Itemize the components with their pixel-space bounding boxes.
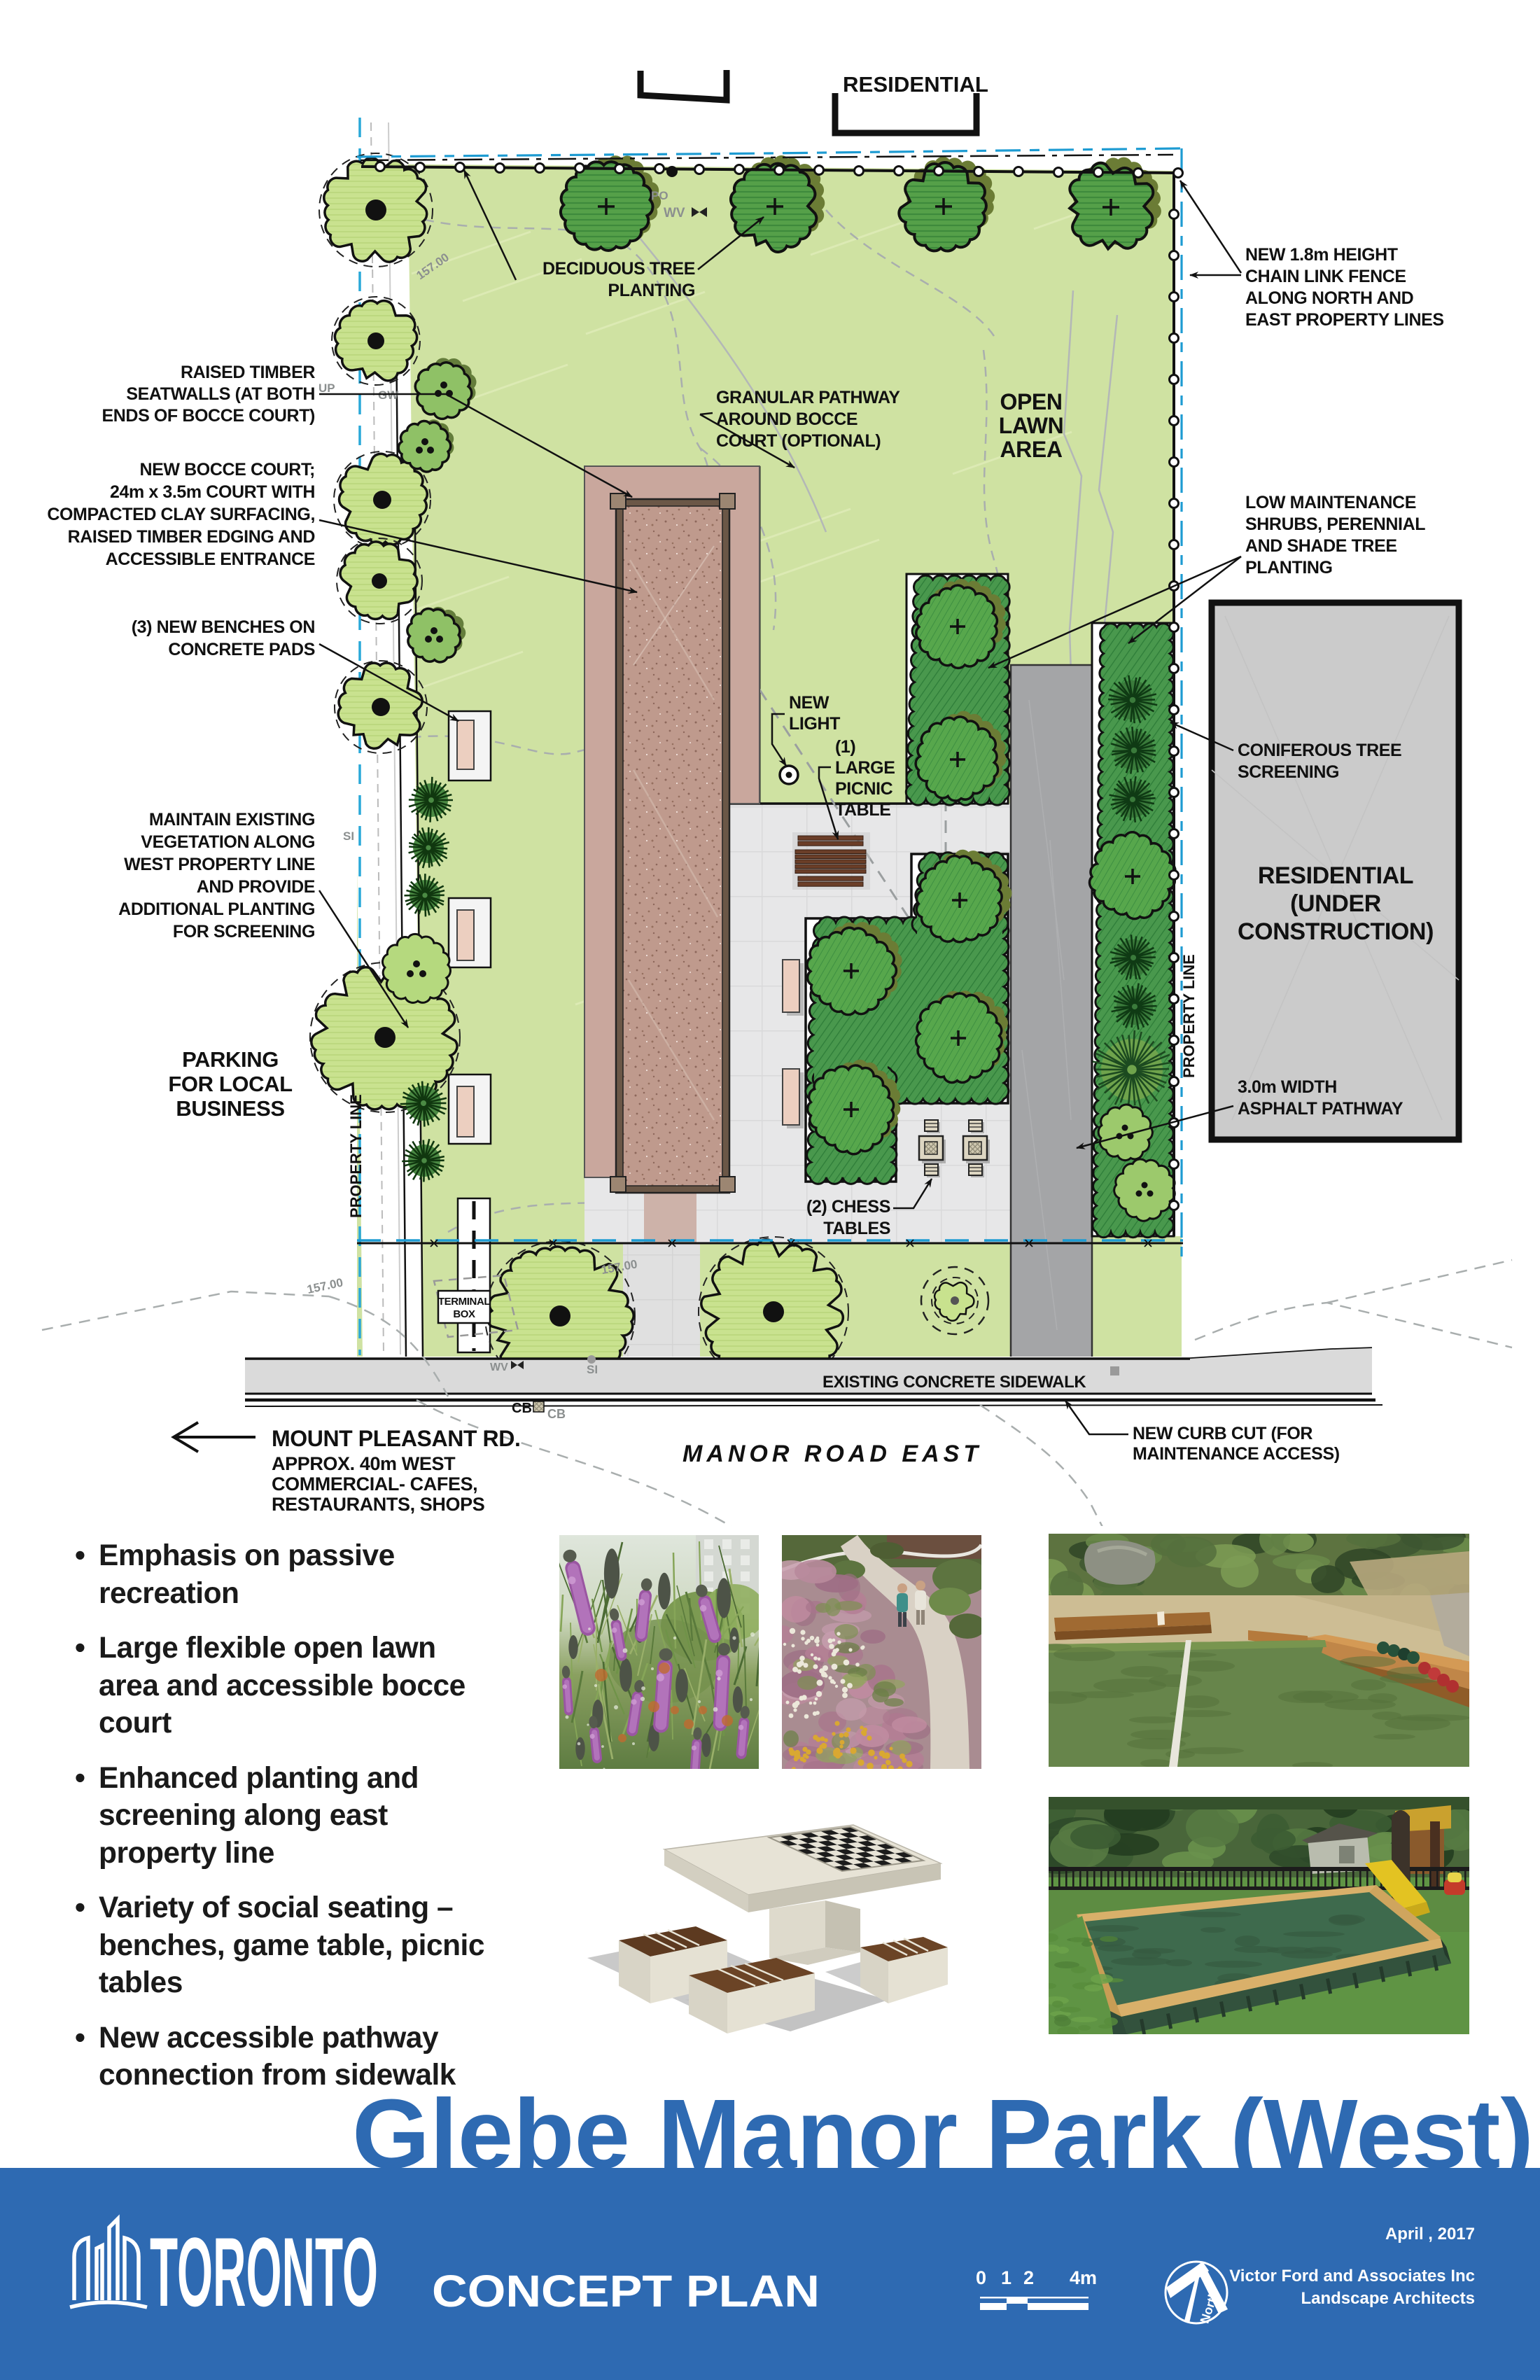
svg-text:LOW MAINTENANCE: LOW MAINTENANCE <box>1245 493 1416 512</box>
svg-text:(UNDER: (UNDER <box>1290 890 1381 917</box>
svg-text:4m: 4m <box>1070 2267 1097 2288</box>
svg-text:DECIDUOUS TREE: DECIDUOUS TREE <box>542 259 695 279</box>
svg-text:PLANTING: PLANTING <box>608 281 695 300</box>
svg-text:NEW 1.8m HEIGHT: NEW 1.8m HEIGHT <box>1245 245 1398 265</box>
svg-text:UP: UP <box>318 381 335 395</box>
svg-text:AROUND BOCCE: AROUND BOCCE <box>716 409 857 429</box>
svg-text:GRANULAR PATHWAY: GRANULAR PATHWAY <box>716 388 900 407</box>
svg-text:WEST PROPERTY LINE: WEST PROPERTY LINE <box>124 855 315 874</box>
svg-text:ADDITIONAL PLANTING: ADDITIONAL PLANTING <box>118 899 315 919</box>
svg-text:(2) CHESS: (2) CHESS <box>806 1197 890 1217</box>
svg-text:CONSTRUCTION): CONSTRUCTION) <box>1238 918 1434 945</box>
svg-text:SI: SI <box>343 829 354 843</box>
svg-text:Glebe Manor Park (West): Glebe Manor Park (West) <box>352 2078 1534 2170</box>
svg-text:ACCESSIBLE ENTRANCE: ACCESSIBLE ENTRANCE <box>106 549 315 569</box>
svg-text:LAWN: LAWN <box>999 413 1064 438</box>
svg-text:BUSINESS: BUSINESS <box>176 1096 284 1121</box>
svg-text:MANOR ROAD EAST: MANOR ROAD EAST <box>682 1441 982 1467</box>
svg-text:CB: CB <box>547 1407 566 1421</box>
svg-text:SCREENING: SCREENING <box>1238 762 1339 782</box>
svg-text:COMMERCIAL- CAFES,: COMMERCIAL- CAFES, <box>272 1473 477 1494</box>
svg-text:2: 2 <box>1023 2267 1034 2288</box>
svg-text:PICNIC: PICNIC <box>835 779 893 799</box>
svg-text:NEW BOCCE COURT;: NEW BOCCE COURT; <box>139 460 315 479</box>
svg-text:PO: PO <box>651 189 668 202</box>
svg-text:RAISED TIMBER: RAISED TIMBER <box>181 363 315 382</box>
svg-text:COMPACTED CLAY SURFACING,: COMPACTED CLAY SURFACING, <box>47 505 315 524</box>
svg-text:ALONG NORTH AND: ALONG NORTH AND <box>1245 288 1413 308</box>
svg-text:COURT (OPTIONAL): COURT (OPTIONAL) <box>716 431 881 451</box>
svg-text:PROPERTY LINE: PROPERTY LINE <box>1180 954 1198 1078</box>
svg-text:APPROX. 40m WEST: APPROX. 40m WEST <box>272 1453 456 1474</box>
svg-text:TERMINAL: TERMINAL <box>438 1296 491 1308</box>
svg-text:AND PROVIDE: AND PROVIDE <box>197 877 315 897</box>
svg-text:SHRUBS, PERENNIAL: SHRUBS, PERENNIAL <box>1245 514 1425 534</box>
svg-text:FOR LOCAL: FOR LOCAL <box>168 1072 292 1096</box>
svg-text:PROPERTY LINE: PROPERTY LINE <box>347 1094 365 1218</box>
svg-text:Landscape Architects: Landscape Architects <box>1301 2289 1475 2308</box>
svg-text:TABLE: TABLE <box>835 800 890 820</box>
svg-text:WV: WV <box>664 206 685 220</box>
svg-text:MOUNT PLEASANT RD.: MOUNT PLEASANT RD. <box>272 1426 520 1451</box>
svg-text:BOX: BOX <box>453 1308 475 1320</box>
svg-text:NEW CURB CUT (FOR: NEW CURB CUT (FOR <box>1133 1424 1312 1443</box>
svg-text:SI: SI <box>587 1363 598 1376</box>
svg-text:RAISED TIMBER EDGING AND: RAISED TIMBER EDGING AND <box>68 527 315 547</box>
svg-text:RESIDENTIAL: RESIDENTIAL <box>1258 862 1413 889</box>
svg-text:CONCEPT PLAN: CONCEPT PLAN <box>432 2266 820 2316</box>
svg-text:LIGHT: LIGHT <box>789 714 840 734</box>
svg-text:LARGE: LARGE <box>835 758 895 778</box>
svg-text:(1): (1) <box>835 737 855 757</box>
svg-text:PARKING: PARKING <box>182 1047 279 1072</box>
svg-text:3.0m WIDTH: 3.0m WIDTH <box>1238 1077 1337 1097</box>
svg-text:CHAIN LINK FENCE: CHAIN LINK FENCE <box>1245 267 1406 286</box>
svg-text:ENDS OF BOCCE COURT): ENDS OF BOCCE COURT) <box>101 406 315 426</box>
svg-text:CONCRETE PADS: CONCRETE PADS <box>168 640 315 659</box>
svg-text:SEATWALLS (AT BOTH: SEATWALLS (AT BOTH <box>126 384 315 404</box>
svg-text:FOR SCREENING: FOR SCREENING <box>173 922 315 941</box>
svg-text:RESTAURANTS, SHOPS: RESTAURANTS, SHOPS <box>272 1494 484 1515</box>
svg-text:AND SHADE TREE: AND SHADE TREE <box>1245 536 1397 556</box>
svg-text:April , 2017: April , 2017 <box>1385 2225 1475 2243</box>
svg-text:(3) NEW BENCHES ON: (3) NEW BENCHES ON <box>132 617 315 637</box>
svg-text:Victor Ford and Associates Inc: Victor Ford and Associates Inc <box>1229 2267 1475 2285</box>
svg-text:1: 1 <box>1001 2267 1011 2288</box>
svg-text:WV: WV <box>490 1361 508 1373</box>
svg-text:MAINTENANCE ACCESS): MAINTENANCE ACCESS) <box>1133 1444 1340 1464</box>
svg-text:CB: CB <box>512 1401 532 1416</box>
svg-text:EAST PROPERTY LINES: EAST PROPERTY LINES <box>1245 310 1444 330</box>
svg-text:NEW: NEW <box>789 693 829 713</box>
svg-text:0: 0 <box>976 2267 986 2288</box>
svg-text:24m x 3.5m COURT WITH: 24m x 3.5m COURT WITH <box>110 482 315 502</box>
svg-text:EXISTING CONCRETE SIDEWALK: EXISTING CONCRETE SIDEWALK <box>822 1373 1086 1392</box>
svg-text:CONIFEROUS TREE: CONIFEROUS TREE <box>1238 741 1401 760</box>
svg-text:RESIDENTIAL: RESIDENTIAL <box>843 72 988 97</box>
svg-text:GW: GW <box>378 388 399 402</box>
svg-text:OPEN: OPEN <box>1000 389 1062 414</box>
svg-text:AREA: AREA <box>1000 437 1062 462</box>
svg-text:ASPHALT PATHWAY: ASPHALT PATHWAY <box>1238 1099 1403 1119</box>
svg-text:TABLES: TABLES <box>823 1219 890 1238</box>
svg-text:PLANTING: PLANTING <box>1245 558 1333 577</box>
svg-text:MAINTAIN EXISTING: MAINTAIN EXISTING <box>149 810 315 829</box>
svg-text:VEGETATION ALONG: VEGETATION ALONG <box>141 832 315 852</box>
